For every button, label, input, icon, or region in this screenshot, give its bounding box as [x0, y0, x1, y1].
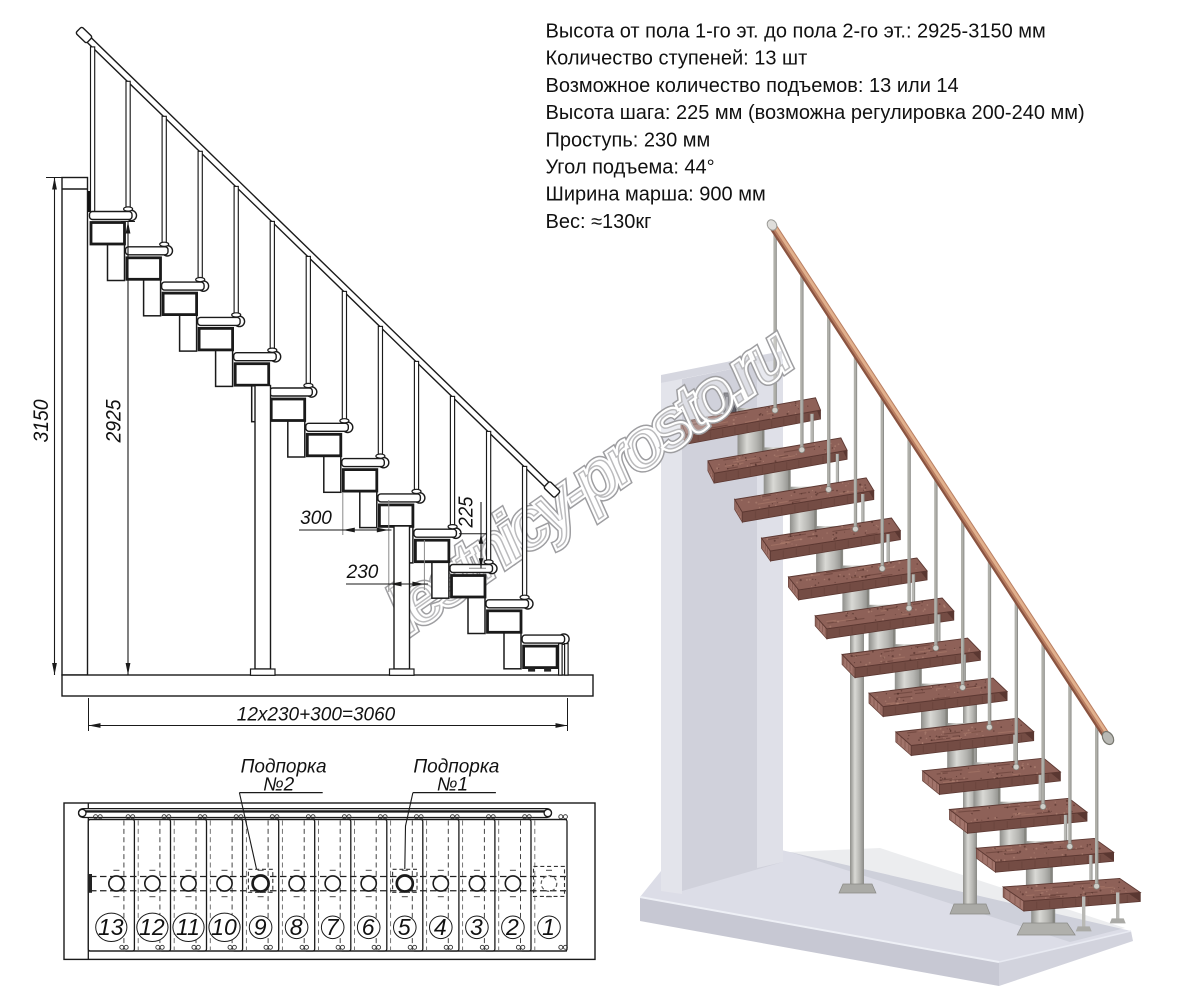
svg-text:1: 1	[542, 914, 555, 940]
svg-text:7: 7	[326, 914, 340, 940]
svg-text:300: 300	[300, 508, 332, 529]
svg-text:12: 12	[139, 914, 165, 940]
svg-text:2: 2	[505, 914, 519, 940]
svg-text:Высота шага: 225 мм (возможна: Высота шага: 225 мм (возможна регулировк…	[546, 102, 1085, 124]
svg-text:Проступь: 230 мм: Проступь: 230 мм	[546, 129, 711, 151]
svg-text:Ширина марша: 900 мм: Ширина марша: 900 мм	[546, 184, 766, 206]
svg-text:10: 10	[211, 914, 237, 940]
svg-text:8: 8	[290, 914, 303, 940]
svg-text:Возможное количество подъемов:: Возможное количество подъемов: 13 или 14	[546, 75, 959, 97]
svg-text:3150: 3150	[30, 399, 53, 442]
svg-text:12x230+300=3060: 12x230+300=3060	[237, 705, 396, 726]
svg-text:5: 5	[398, 914, 411, 940]
svg-text:6: 6	[362, 914, 375, 940]
svg-text:Количество ступеней: 13 шт: Количество ступеней: 13 шт	[546, 48, 808, 70]
svg-text:Вес: ≈130кг: Вес: ≈130кг	[546, 211, 652, 233]
svg-text:4: 4	[434, 914, 447, 940]
svg-text:225: 225	[456, 496, 478, 529]
svg-text:3: 3	[470, 914, 483, 940]
svg-text:2925: 2925	[103, 399, 126, 443]
svg-text:Высота от пола 1-го эт. до пол: Высота от пола 1-го эт. до пола 2-го эт.…	[546, 21, 1046, 43]
svg-text:9: 9	[254, 914, 267, 940]
svg-text:13: 13	[98, 914, 124, 940]
svg-text:11: 11	[176, 914, 200, 940]
svg-text:230: 230	[346, 562, 379, 583]
svg-text:Угол подъема: 44°: Угол подъема: 44°	[546, 157, 715, 179]
